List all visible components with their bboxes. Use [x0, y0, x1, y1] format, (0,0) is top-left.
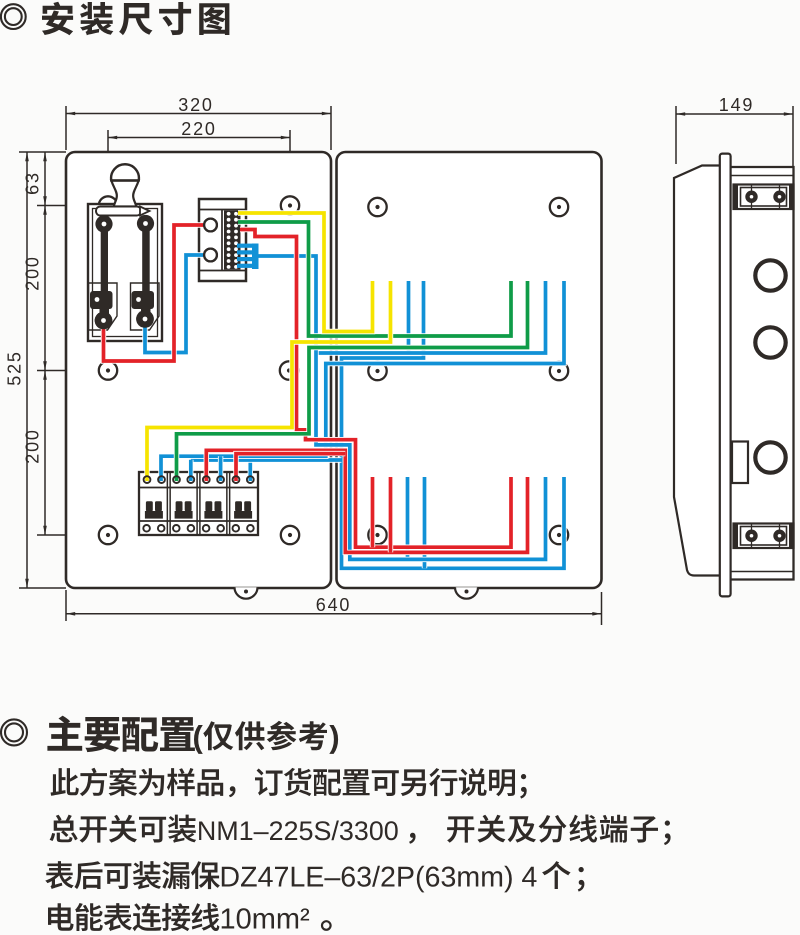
- svg-text:200: 200: [23, 255, 43, 290]
- svg-text:200: 200: [23, 428, 43, 463]
- svg-text:220: 220: [181, 119, 216, 139]
- svg-text:525: 525: [5, 350, 25, 385]
- svg-text:149: 149: [719, 95, 754, 115]
- svg-text:320: 320: [178, 95, 213, 115]
- svg-text:640: 640: [316, 595, 351, 615]
- svg-text:63: 63: [23, 171, 43, 195]
